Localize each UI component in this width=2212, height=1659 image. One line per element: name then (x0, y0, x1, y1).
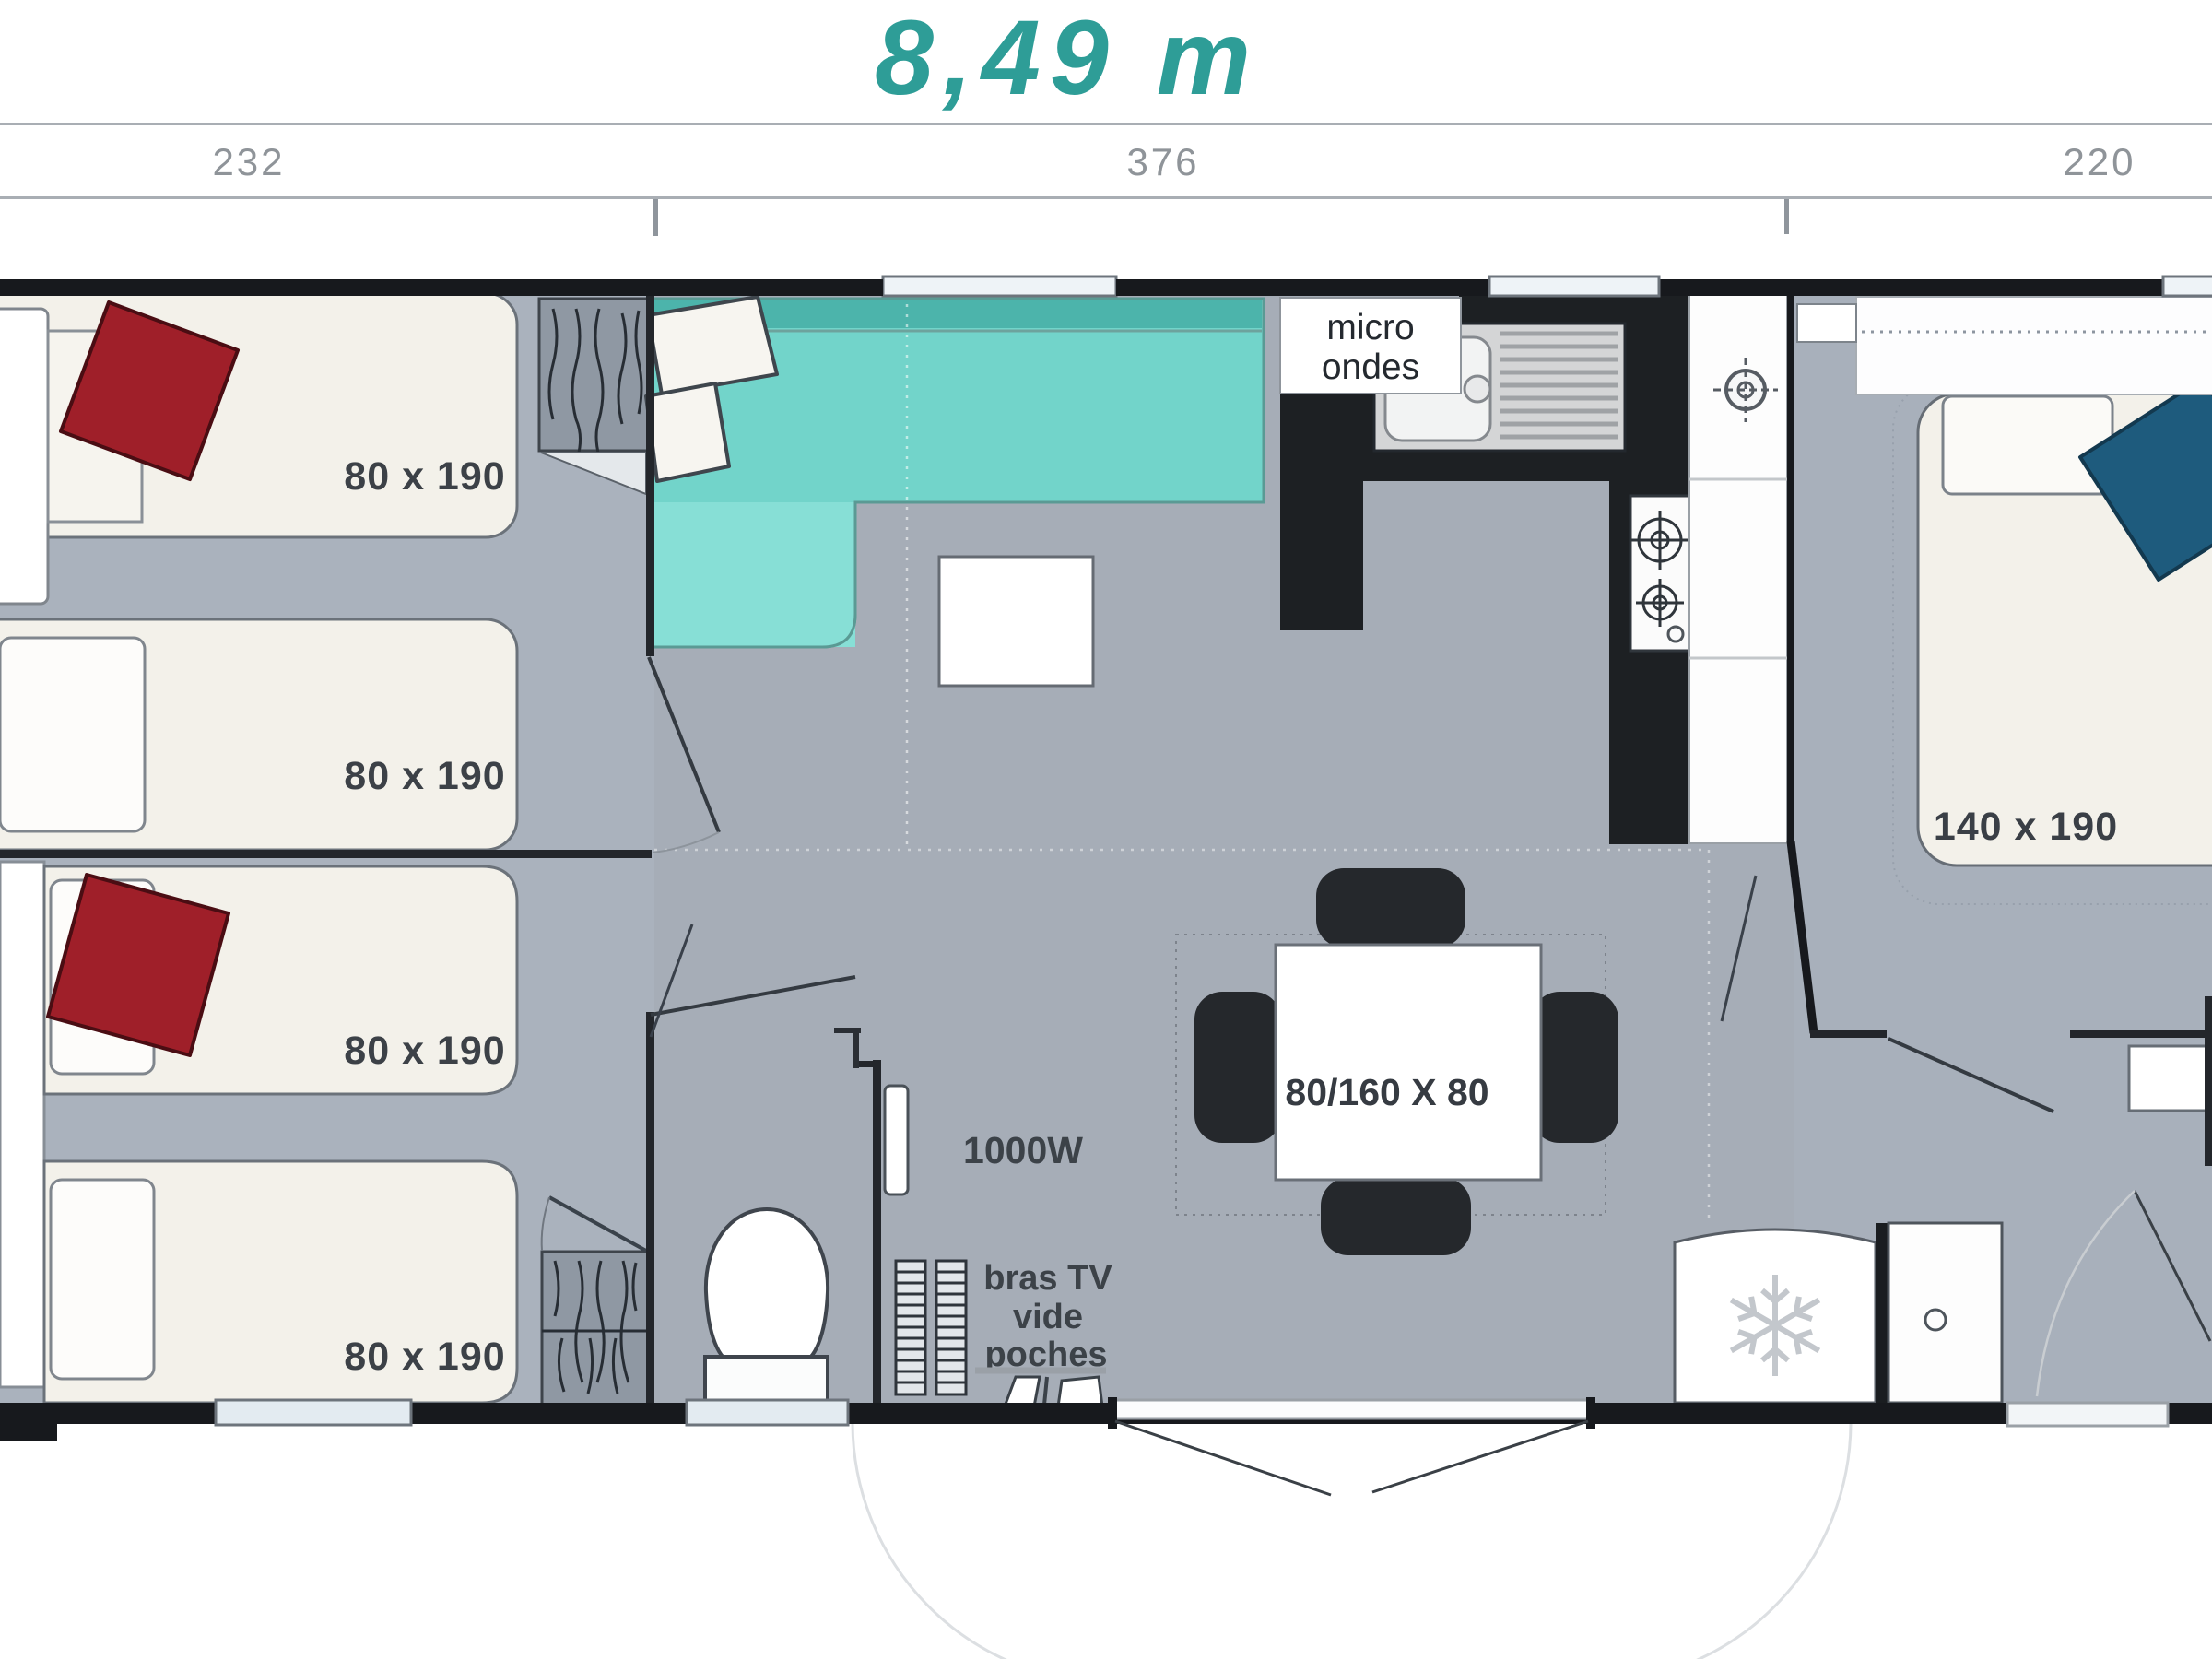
svg-text:micro: micro (1326, 308, 1414, 347)
svg-text:140 x 190: 140 x 190 (1934, 805, 2118, 849)
svg-text:vide: vide (1013, 1298, 1083, 1336)
svg-text:80/160 X 80: 80/160 X 80 (1285, 1071, 1488, 1113)
svg-text:80 x 190: 80 x 190 (344, 454, 505, 499)
svg-text:bras TV: bras TV (983, 1259, 1112, 1298)
svg-text:376: 376 (1126, 140, 1199, 183)
svg-text:80 x 190: 80 x 190 (344, 754, 505, 798)
svg-text:80 x 190: 80 x 190 (344, 1029, 505, 1073)
svg-text:220: 220 (2063, 140, 2136, 183)
svg-text:8,49 m: 8,49 m (875, 0, 1260, 117)
svg-text:ondes: ondes (1322, 347, 1419, 387)
svg-text:1000W: 1000W (963, 1129, 1083, 1171)
svg-text:232: 232 (212, 140, 285, 183)
svg-text:80 x 190: 80 x 190 (344, 1335, 505, 1379)
